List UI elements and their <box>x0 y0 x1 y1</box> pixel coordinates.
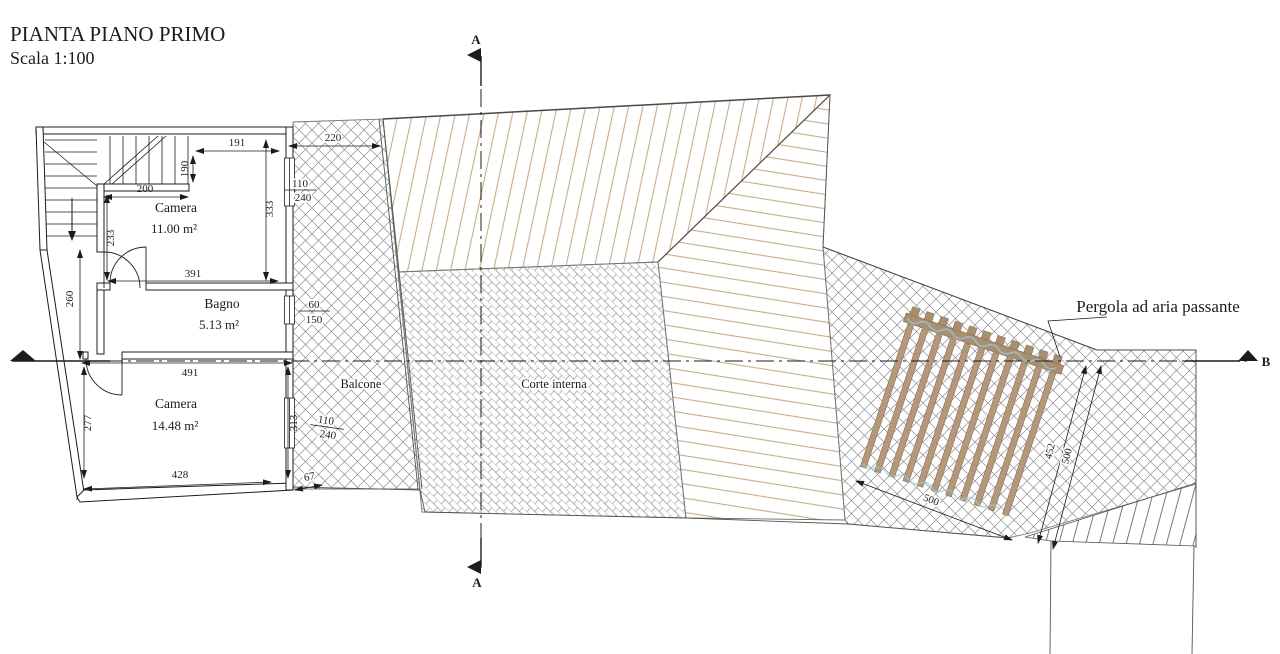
corte-interna-label: Corte interna <box>521 377 587 391</box>
section-label-bottom: A <box>472 575 482 590</box>
south-wall <box>77 483 293 502</box>
dim-191: 191 <box>229 137 246 149</box>
north-wall <box>36 127 293 134</box>
balcone-label: Balcone <box>341 377 382 391</box>
camera2-area: 14.48 m² <box>152 418 199 433</box>
west-wall-lower <box>40 250 84 497</box>
stair-direction-arrow <box>68 198 76 241</box>
w3-num: 110 <box>317 414 335 428</box>
floor-plan: PIANTA PIANO PRIMO Scala 1:100 A A B Cam… <box>0 0 1280 654</box>
bagno-area: 5.13 m² <box>199 317 239 332</box>
dim-190: 190 <box>179 160 191 177</box>
stair-treads-left <box>45 140 97 236</box>
west-wall-upper <box>36 127 47 250</box>
page-title: PIANTA PIANO PRIMO <box>10 22 225 46</box>
camera1-area: 11.00 m² <box>151 221 197 236</box>
section-label-top: A <box>471 32 481 47</box>
stair-treads-top <box>110 136 188 184</box>
pergola-label: Pergola ad aria passante <box>1076 297 1239 316</box>
wall-camera1-bagno-a <box>97 283 110 290</box>
dim-428: 428 <box>172 469 189 481</box>
dim-200: 200 <box>137 183 154 195</box>
page-scale: Scala 1:100 <box>10 48 94 68</box>
window-bagno <box>285 296 295 324</box>
dim-233: 233 <box>105 229 117 246</box>
camera2-name: Camera <box>155 396 197 411</box>
inner-wall-v1 <box>97 184 104 252</box>
section-arrow-bottom <box>467 560 481 574</box>
wall-camera1-bagno-b <box>146 283 293 290</box>
inner-wall-v2 <box>97 285 104 354</box>
camera1-name: Camera <box>155 200 197 215</box>
dim-260: 260 <box>64 290 76 307</box>
w1-den: 240 <box>295 192 312 204</box>
dim-333: 333 <box>264 200 276 217</box>
bagno-name: Bagno <box>204 296 239 311</box>
dim-220: 220 <box>325 132 342 144</box>
dim-277: 277 <box>82 414 94 431</box>
section-arrow-right <box>1238 350 1258 361</box>
door-camera2 <box>86 359 122 395</box>
w2-num: 60 <box>309 299 321 311</box>
dim-313: 313 <box>288 414 300 431</box>
dim-491: 491 <box>182 367 199 379</box>
section-label-right: B <box>1262 354 1271 369</box>
stair-break-2 <box>112 136 166 184</box>
site-regions <box>76 95 1196 654</box>
section-arrow-top <box>467 48 481 62</box>
door-camera1 <box>110 247 146 283</box>
doors <box>86 247 146 395</box>
wall-bagno-camera2-a <box>83 352 88 359</box>
dim-391: 391 <box>185 268 202 280</box>
floor-plan-canvas: PIANTA PIANO PRIMO Scala 1:100 A A B Cam… <box>0 0 1280 654</box>
w1-num: 110 <box>292 178 309 190</box>
w2-den: 150 <box>306 314 323 326</box>
w3-den: 240 <box>319 428 338 442</box>
stair-break-1 <box>104 136 158 184</box>
wall-bagno-camera2-b <box>122 352 293 359</box>
building-walls <box>36 127 293 502</box>
section-arrow-left <box>10 350 36 361</box>
east-windows <box>285 158 295 448</box>
